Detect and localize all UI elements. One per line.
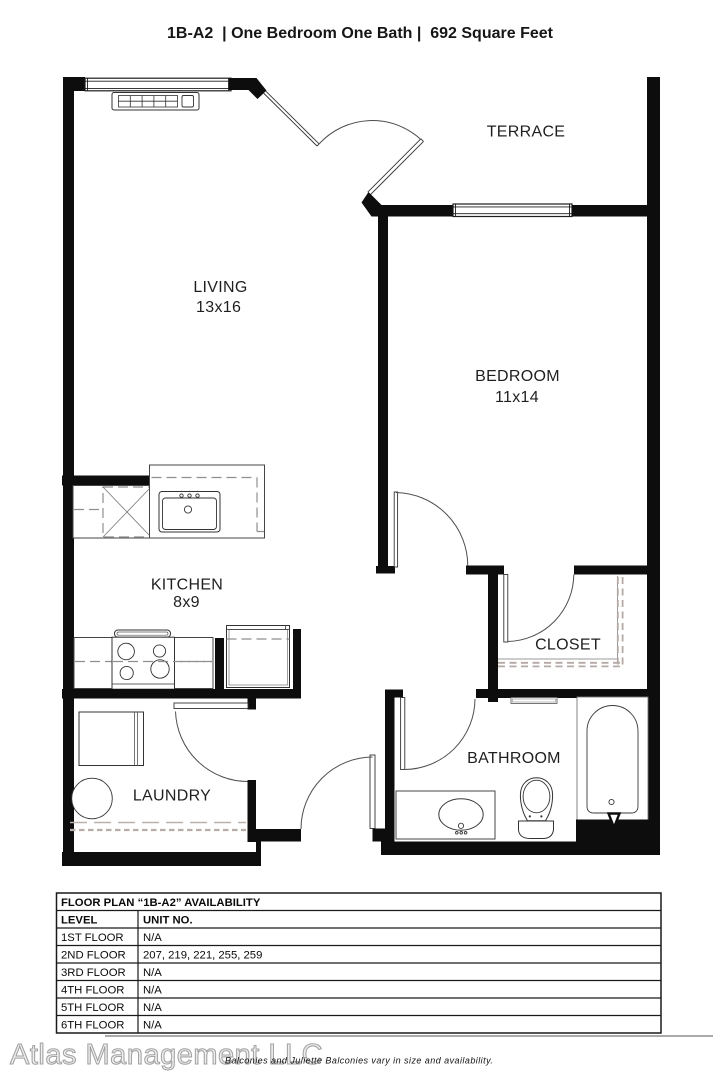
svg-text:4TH FLOOR: 4TH FLOOR — [61, 984, 124, 996]
svg-text:BATHROOM: BATHROOM — [467, 750, 561, 767]
svg-text:Balconies and Juliette Balconi: Balconies and Juliette Balconies vary in… — [225, 1056, 493, 1066]
svg-text:8x9: 8x9 — [173, 594, 200, 611]
svg-text:3RD FLOOR: 3RD FLOOR — [61, 967, 126, 979]
svg-text:11x14: 11x14 — [495, 389, 539, 406]
svg-text:1ST FLOOR: 1ST FLOOR — [61, 932, 124, 944]
svg-text:CLOSET: CLOSET — [535, 636, 601, 653]
svg-text:FLOOR PLAN “1B-A2” AVAILABILIT: FLOOR PLAN “1B-A2” AVAILABILITY — [61, 897, 261, 909]
svg-text:2ND FLOOR: 2ND FLOOR — [61, 949, 126, 961]
svg-text:TERRACE: TERRACE — [487, 123, 566, 140]
svg-text:N/A: N/A — [143, 967, 162, 979]
svg-text:BEDROOM: BEDROOM — [475, 368, 560, 385]
svg-text:13x16: 13x16 — [196, 299, 241, 316]
svg-text:N/A: N/A — [143, 1019, 162, 1031]
svg-text:N/A: N/A — [143, 984, 162, 996]
svg-text:5TH FLOOR: 5TH FLOOR — [61, 1002, 124, 1014]
svg-text:KITCHEN: KITCHEN — [151, 577, 223, 594]
svg-text:N/A: N/A — [143, 1002, 162, 1014]
svg-text:1B-A2 | One Bedroom One Bath: 1B-A2 | One Bedroom One Bath | 692 Squar… — [167, 25, 554, 42]
svg-text:LAUNDRY: LAUNDRY — [133, 787, 211, 804]
svg-text:N/A: N/A — [143, 932, 162, 944]
svg-text:207, 219, 221, 255, 259: 207, 219, 221, 255, 259 — [143, 949, 262, 961]
svg-text:LIVING: LIVING — [193, 279, 247, 296]
svg-text:6TH FLOOR: 6TH FLOOR — [61, 1019, 124, 1031]
svg-text:UNIT NO.: UNIT NO. — [143, 914, 193, 926]
svg-text:LEVEL: LEVEL — [61, 914, 98, 926]
